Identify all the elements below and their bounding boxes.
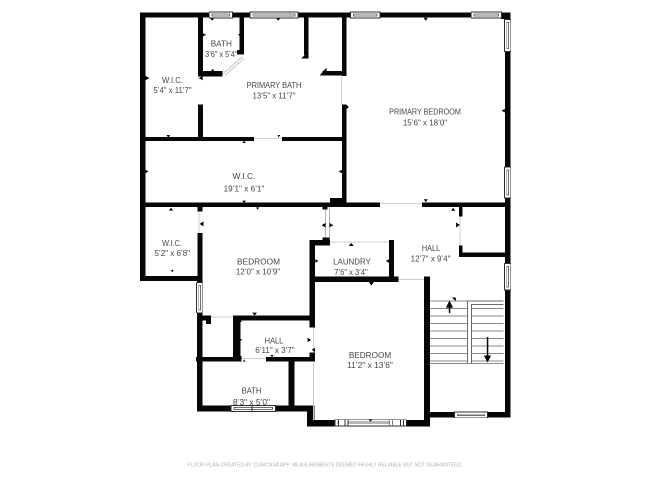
- svg-text:5’4" x 11’7": 5’4" x 11’7": [153, 85, 191, 95]
- svg-text:LAUNDRY: LAUNDRY: [333, 256, 371, 266]
- svg-text:8’3" x 5’0": 8’3" x 5’0": [233, 397, 270, 407]
- svg-text:BATH: BATH: [242, 386, 262, 396]
- svg-text:6’11" x 3’7": 6’11" x 3’7": [255, 345, 294, 355]
- svg-text:19’1" x 6’1": 19’1" x 6’1": [224, 184, 265, 194]
- svg-text:HALL: HALL: [422, 243, 441, 253]
- svg-text:FLOOR PLAN CREATED BY CUBICASA: FLOOR PLAN CREATED BY CUBICASA APP. MEAS…: [188, 462, 463, 468]
- svg-text:3’6" x 5’4": 3’6" x 5’4": [205, 49, 237, 59]
- svg-text:PRIMARY BEDROOM: PRIMARY BEDROOM: [389, 107, 461, 117]
- svg-text:11’2" x 13’6": 11’2" x 13’6": [347, 360, 393, 370]
- svg-text:13’5" x 11’7": 13’5" x 11’7": [252, 90, 295, 100]
- svg-text:BEDROOM: BEDROOM: [349, 350, 391, 360]
- svg-text:BEDROOM: BEDROOM: [237, 257, 280, 267]
- svg-text:12’0" x 10’9": 12’0" x 10’9": [236, 266, 280, 276]
- svg-text:HALL: HALL: [265, 336, 284, 346]
- svg-text:W.I.C.: W.I.C.: [162, 75, 183, 85]
- svg-text:W.I.C.: W.I.C.: [233, 171, 256, 181]
- svg-text:PRIMARY BATH: PRIMARY BATH: [247, 80, 302, 90]
- svg-text:7’6" x 3’4": 7’6" x 3’4": [334, 267, 367, 277]
- svg-text:15’6" x 18’0": 15’6" x 18’0": [403, 118, 447, 128]
- svg-text:5’2" x 6’8": 5’2" x 6’8": [154, 248, 190, 258]
- svg-text:12’7" x 9’4": 12’7" x 9’4": [411, 253, 451, 263]
- svg-text:W.I.C.: W.I.C.: [162, 238, 182, 248]
- svg-text:BATH: BATH: [211, 39, 232, 49]
